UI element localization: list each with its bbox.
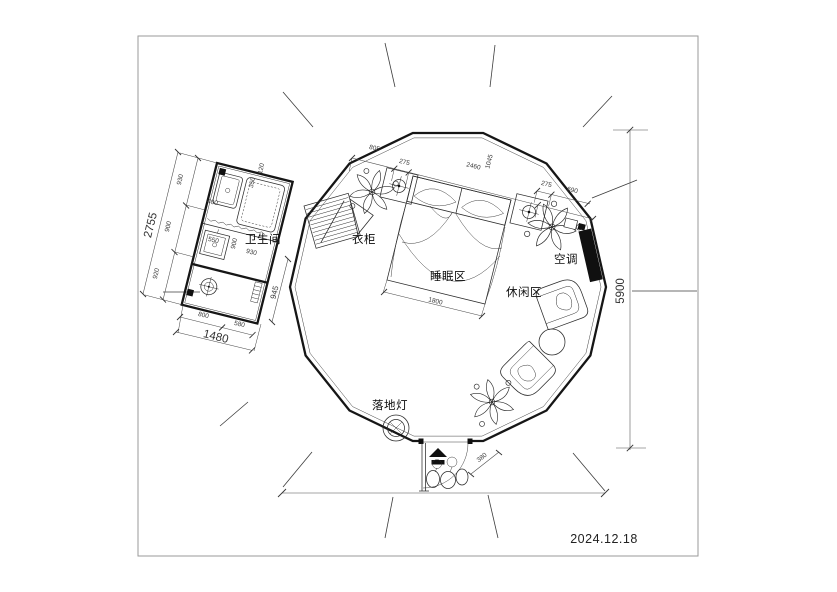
door-jamb-left bbox=[419, 439, 424, 445]
floor-plan-page: 380 bbox=[0, 0, 837, 592]
sleeping-area-label: 睡眠区 bbox=[430, 270, 466, 283]
drawing-frame bbox=[138, 36, 698, 556]
ac-label: 空调 bbox=[554, 252, 578, 266]
drawing-date: 2024.12.18 bbox=[570, 532, 638, 546]
door-jamb-right bbox=[468, 439, 473, 445]
bathroom-label: 卫生间 bbox=[245, 232, 281, 246]
leisure-area-label: 休闲区 bbox=[506, 285, 542, 299]
floor-plan-drawing: 380 bbox=[0, 0, 837, 592]
dim-height-total-label: 5900 bbox=[615, 278, 627, 304]
floor-lamp-label: 落地灯 bbox=[372, 399, 408, 412]
wardrobe-label: 衣柜 bbox=[352, 232, 376, 246]
